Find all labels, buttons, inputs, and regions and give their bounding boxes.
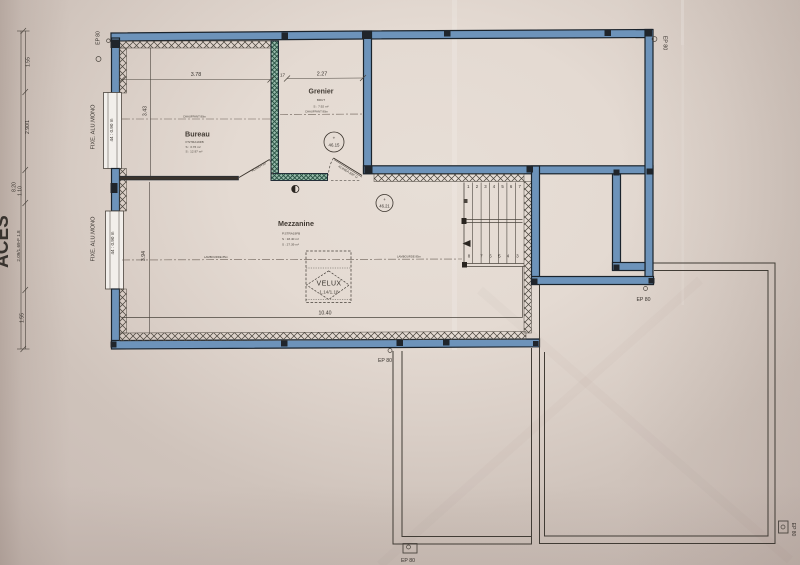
svg-text:P.STRA19FB: P.STRA19FB	[186, 140, 204, 144]
svg-text:FIXE. ALU.MONO: FIXE. ALU.MONO	[91, 104, 97, 150]
svg-text:7: 7	[519, 184, 522, 189]
svg-text:S : 12.97 m²: S : 12.97 m²	[186, 150, 203, 154]
svg-text:17: 17	[280, 73, 286, 78]
svg-text:1: 1	[467, 184, 470, 189]
svg-text:5: 5	[501, 184, 504, 189]
svg-text:6: 6	[489, 254, 492, 259]
svg-text:ACES: ACES	[0, 215, 13, 268]
svg-text:1.55: 1.55	[20, 313, 26, 323]
svg-text:EP 80: EP 80	[378, 358, 392, 364]
svg-text:Bureau: Bureau	[185, 130, 210, 139]
svg-text:2: 2	[476, 184, 479, 189]
svg-text:Grenier: Grenier	[309, 89, 334, 96]
svg-text:7: 7	[480, 254, 483, 259]
svg-text:EP 80: EP 80	[636, 297, 650, 303]
svg-text:3.94: 3.94	[141, 251, 147, 261]
svg-text:EP 80: EP 80	[790, 523, 796, 537]
svg-text:P.STRA19FB: P.STRA19FB	[282, 232, 300, 236]
svg-text:10.40: 10.40	[319, 311, 332, 317]
svg-text:EP 80: EP 80	[401, 558, 415, 564]
svg-text:6: 6	[510, 184, 513, 189]
svg-text:EP 80: EP 80	[96, 31, 102, 45]
svg-text:FIXE. ALU.MONO: FIXE. ALU.MONO	[91, 216, 97, 262]
svg-text:44 : 0.90 m: 44 : 0.90 m	[109, 118, 114, 141]
svg-text:3.43: 3.43	[143, 106, 149, 116]
svg-text:1.14/1.18: 1.14/1.18	[319, 290, 339, 295]
svg-text:46.15: 46.15	[329, 143, 341, 148]
svg-text:S : 18.40 m²: S : 18.40 m²	[282, 237, 299, 241]
svg-text:44 : 0.90 m: 44 : 0.90 m	[110, 231, 115, 254]
svg-text:LAMBOURDE 85m: LAMBOURDE 85m	[397, 255, 422, 259]
svg-text:EP 80: EP 80	[662, 36, 668, 51]
svg-text:3: 3	[484, 184, 487, 189]
svg-text:S : 3.76 m²: S : 3.76 m²	[186, 145, 201, 149]
svg-text:5: 5	[498, 254, 501, 259]
svg-text:LAMBOURDE 85m: LAMBOURDE 85m	[204, 255, 229, 259]
svg-text:3: 3	[516, 254, 519, 259]
svg-text:ALINEA 80: ALINEA 80	[251, 161, 267, 173]
svg-text:VELUX: VELUX	[317, 281, 342, 288]
svg-text:46.21: 46.21	[379, 204, 390, 209]
svg-text:Mezzanine: Mezzanine	[278, 219, 314, 228]
svg-text:8: 8	[468, 254, 471, 259]
svg-text:2.90/1: 2.90/1	[25, 120, 31, 134]
svg-text:2.27: 2.27	[317, 72, 328, 78]
svg-text:1.55: 1.55	[26, 57, 32, 67]
svg-text:BRUT: BRUT	[317, 98, 325, 102]
svg-text:3.78: 3.78	[191, 72, 202, 78]
svg-text:2.09/1.69-F 1.8: 2.09/1.69-F 1.8	[16, 230, 21, 262]
svg-text:CHAUFFANT 80m: CHAUFFANT 80m	[305, 110, 329, 114]
svg-text:S : 7.92 m²: S : 7.92 m²	[313, 105, 328, 109]
svg-text:+: +	[383, 197, 386, 202]
svg-text:S : 27.39 m²: S : 27.39 m²	[282, 243, 299, 247]
svg-text:CHAUFFANT 80m: CHAUFFANT 80m	[183, 115, 207, 119]
svg-text:4: 4	[507, 254, 510, 259]
svg-text:1.10: 1.10	[18, 186, 24, 196]
svg-text:+: +	[333, 136, 336, 141]
svg-text:4: 4	[493, 184, 496, 189]
